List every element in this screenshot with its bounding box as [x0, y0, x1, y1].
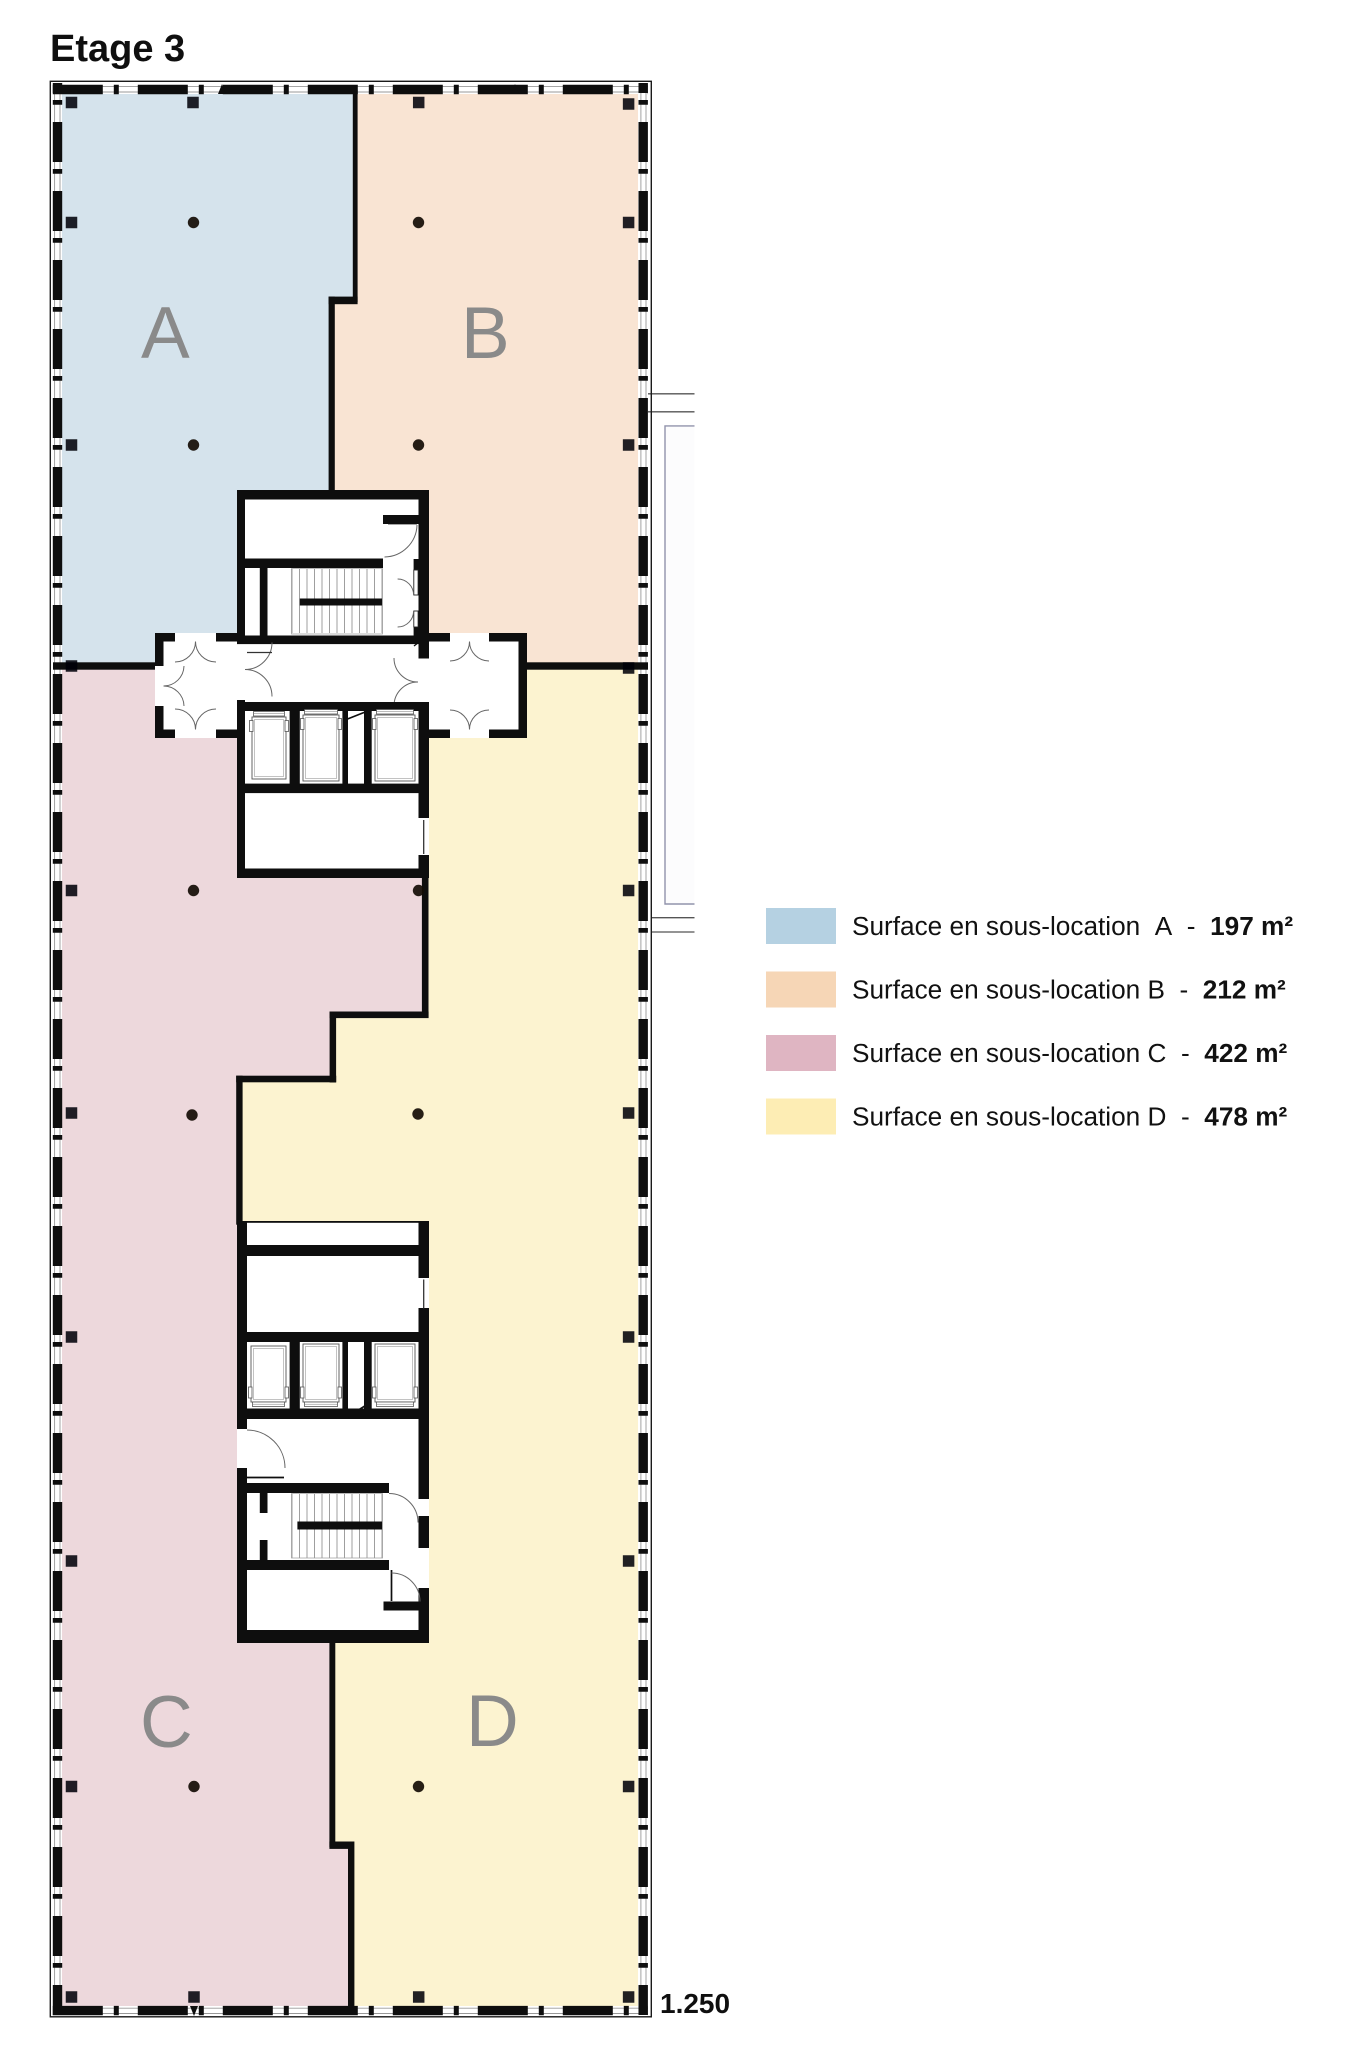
svg-text:B: B — [461, 293, 510, 374]
svg-text:1.250: 1.250 — [660, 1988, 730, 2019]
svg-text:C: C — [140, 1682, 193, 1763]
svg-text:Surface en sous-location B -: Surface en sous-location B - 212 m² — [852, 975, 1286, 1005]
svg-text:Etage 3: Etage 3 — [50, 28, 185, 70]
svg-text:Surface en sous-location D -: Surface en sous-location D - 478 m² — [852, 1102, 1288, 1132]
svg-text:A: A — [141, 293, 190, 374]
svg-text:Surface en sous-location A -: Surface en sous-location A - 197 m² — [852, 911, 1293, 941]
svg-text:Surface en sous-location C -: Surface en sous-location C - 422 m² — [852, 1038, 1288, 1068]
svg-text:D: D — [466, 1681, 519, 1762]
